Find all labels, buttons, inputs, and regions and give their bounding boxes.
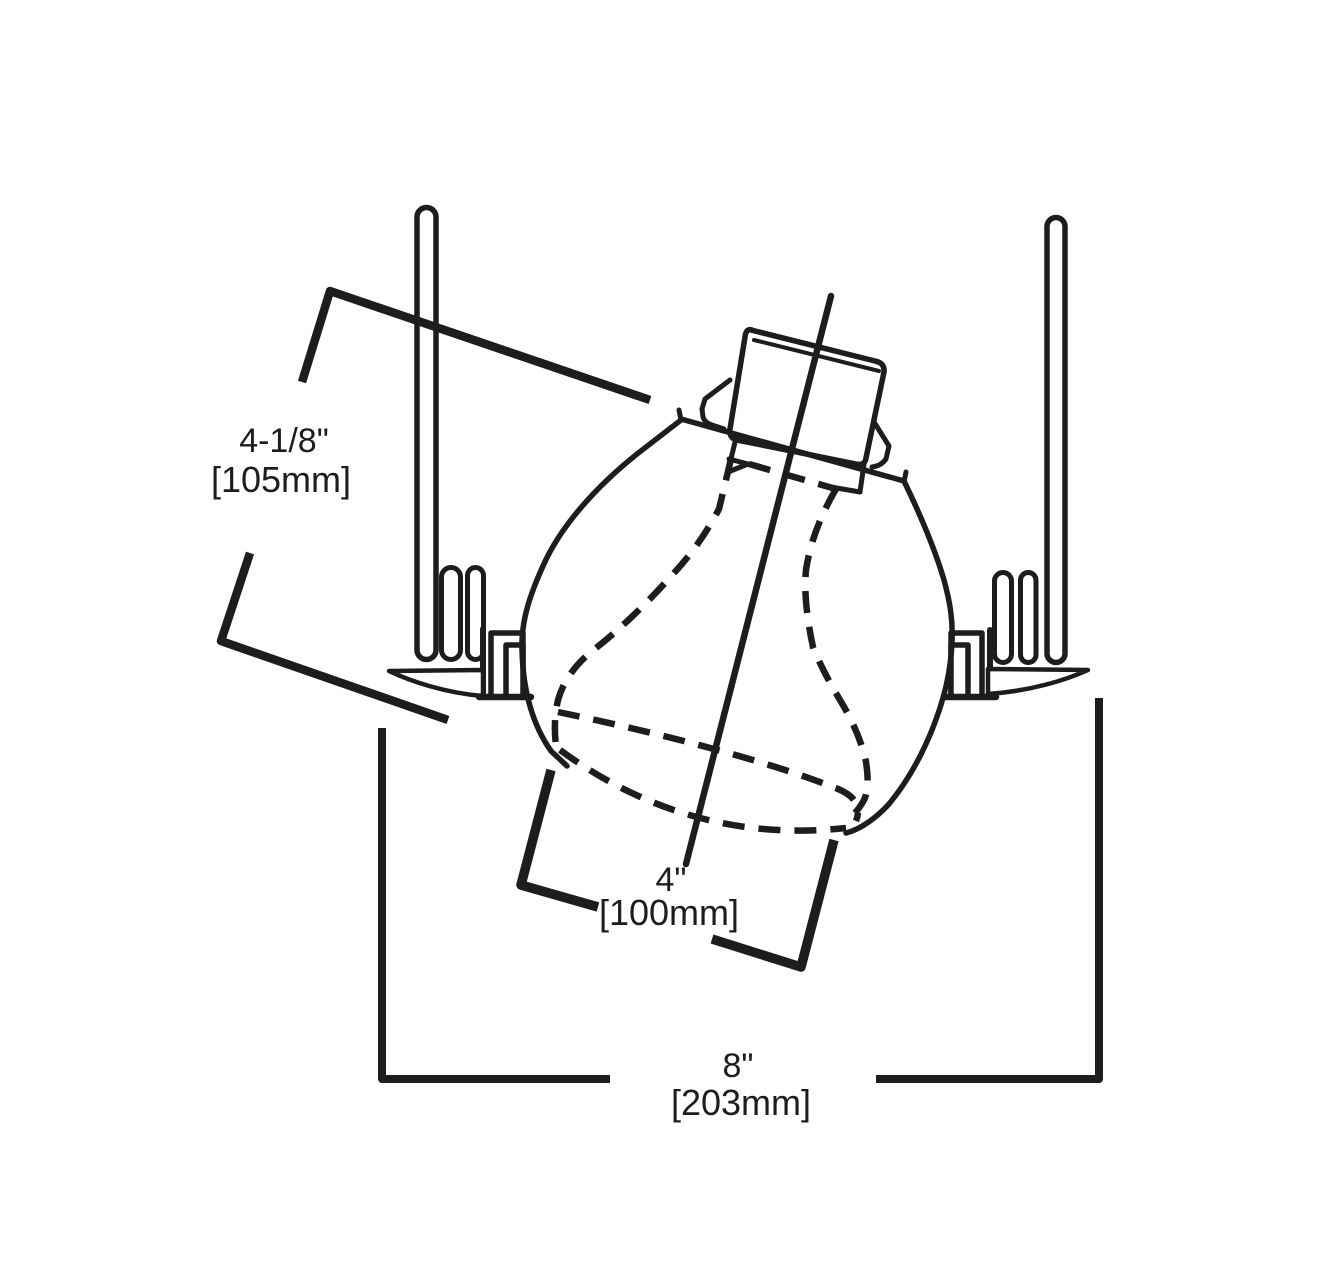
svg-text:4-1/8": 4-1/8" [239,422,329,460]
svg-text:[203mm]: [203mm] [671,1082,811,1123]
svg-text:8": 8" [723,1047,754,1085]
svg-text:[105mm]: [105mm] [211,459,351,500]
svg-text:[100mm]: [100mm] [599,892,739,933]
